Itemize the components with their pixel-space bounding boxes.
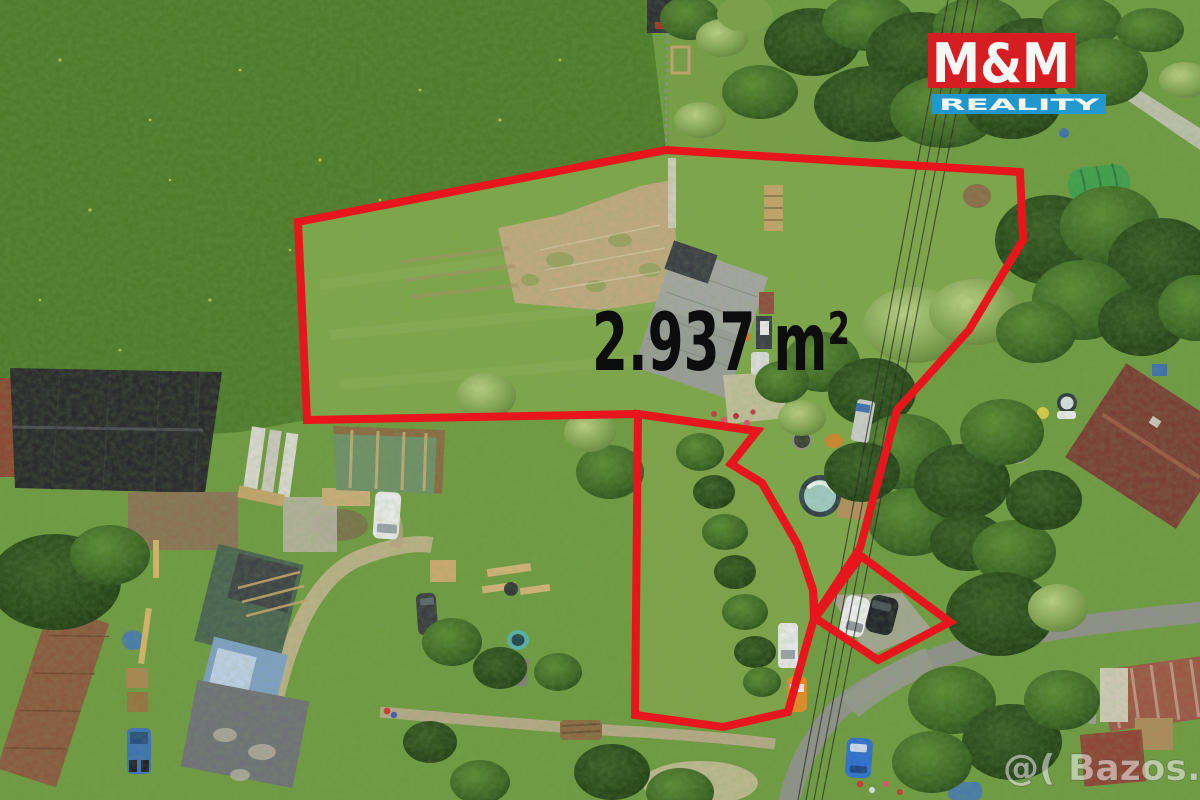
logo-bottom-text: REALITY (939, 95, 1100, 114)
area-label: 2.937 m² (592, 296, 850, 389)
aerial-photo: 2.937 m² M&M REALITY @( Bazos.cz (0, 0, 1200, 800)
logo-top-text: M&M (932, 32, 1070, 95)
listing-photo-stage: 2.937 m² M&M REALITY @( Bazos.cz (0, 0, 1200, 800)
watermark-text: @( Bazos.cz (1003, 748, 1200, 789)
photo-grain (0, 0, 1200, 800)
